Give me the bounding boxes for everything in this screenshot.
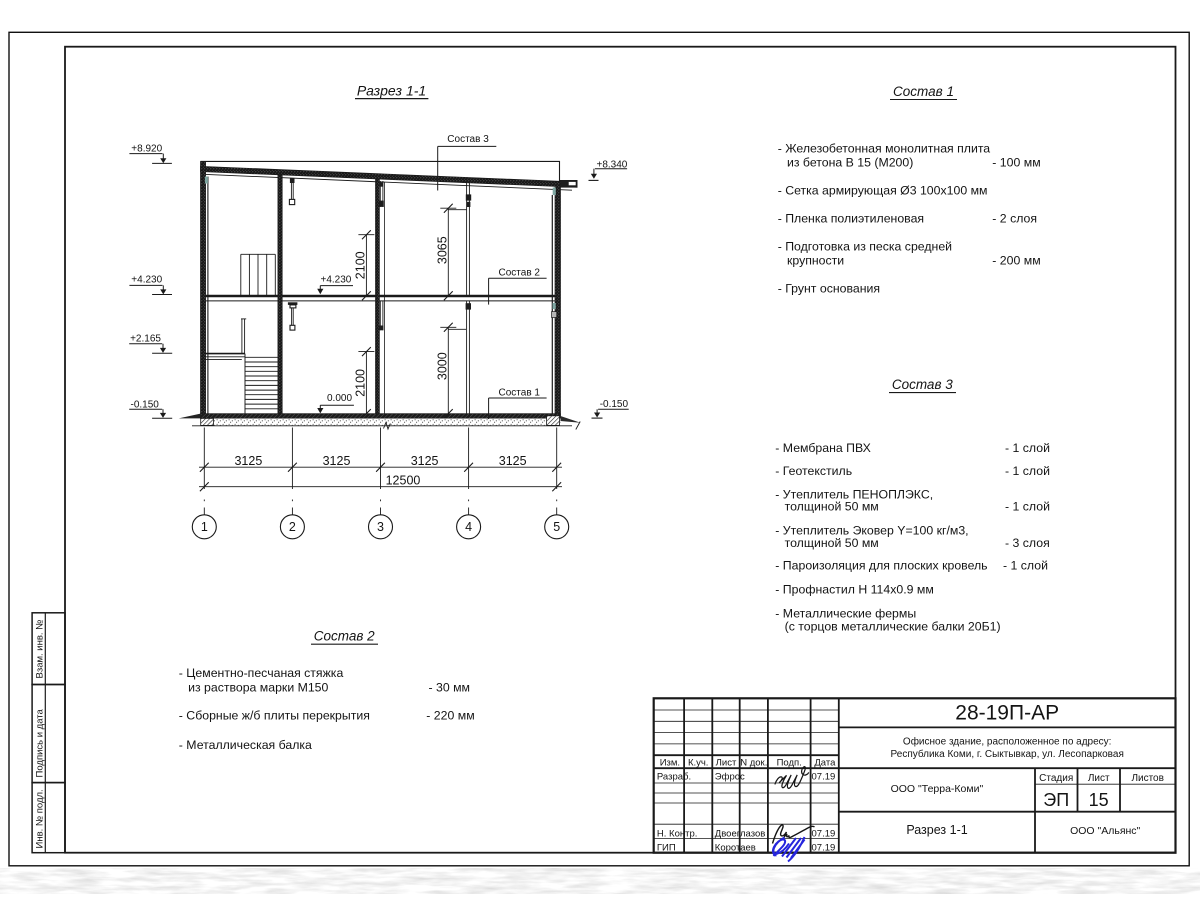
svg-text:28-19П-АР: 28-19П-АР xyxy=(955,702,1059,725)
svg-text:- 1 слой: - 1 слой xyxy=(1005,500,1050,514)
svg-text:3125: 3125 xyxy=(234,454,262,468)
svg-text:5: 5 xyxy=(553,520,560,534)
svg-text:Состав 2: Состав 2 xyxy=(314,628,375,643)
svg-text:1: 1 xyxy=(201,520,208,534)
svg-text:- 1 слой: - 1 слой xyxy=(1003,558,1048,572)
svg-text:- Подготовка из песка средней: - Подготовка из песка средней xyxy=(778,240,952,254)
svg-text:ГИП: ГИП xyxy=(657,842,676,853)
svg-text:из бетона В 15 (М200): из бетона В 15 (М200) xyxy=(787,156,913,170)
svg-text:Эфрос: Эфрос xyxy=(715,772,745,783)
svg-text:Лист: Лист xyxy=(716,758,737,769)
svg-text:- Цементно-песчаная стяжка: - Цементно-песчаная стяжка xyxy=(179,666,344,680)
svg-text:толщиной 50 мм: толщиной 50 мм xyxy=(785,500,879,514)
svg-text:Двоеглазов: Двоеглазов xyxy=(715,829,766,840)
svg-text:- Геотекстиль: - Геотекстиль xyxy=(775,464,852,478)
svg-text:+4.230: +4.230 xyxy=(321,274,352,285)
svg-text:12500: 12500 xyxy=(386,473,421,487)
svg-text:2100: 2100 xyxy=(353,251,367,279)
svg-text:К.уч.: К.уч. xyxy=(688,758,709,769)
svg-text:3: 3 xyxy=(377,520,384,534)
svg-text:- 1 слой: - 1 слой xyxy=(1005,441,1050,455)
svg-text:- Грунт основания: - Грунт основания xyxy=(778,282,880,296)
svg-text:3125: 3125 xyxy=(323,454,351,468)
svg-text:Разрез 1-1: Разрез 1-1 xyxy=(906,823,967,837)
svg-text:- 2 слоя: - 2 слоя xyxy=(992,212,1037,226)
svg-text:Состав 3: Состав 3 xyxy=(892,377,953,392)
svg-text:Состав 3: Состав 3 xyxy=(447,134,489,145)
svg-text:3125: 3125 xyxy=(499,454,527,468)
svg-text:15: 15 xyxy=(1089,790,1109,810)
svg-text:- Профнастил Н 114х0.9 мм: - Профнастил Н 114х0.9 мм xyxy=(775,582,933,596)
svg-text:Разрез 1-1: Разрез 1-1 xyxy=(357,83,426,99)
svg-text:2: 2 xyxy=(289,520,296,534)
svg-text:3125: 3125 xyxy=(411,454,439,468)
svg-text:Состав 2: Состав 2 xyxy=(499,268,541,279)
svg-text:- Мембрана ПВХ: - Мембрана ПВХ xyxy=(775,441,871,455)
svg-text:07.19: 07.19 xyxy=(812,842,836,853)
svg-text:- 100 мм: - 100 мм xyxy=(992,156,1040,170)
svg-text:07.19: 07.19 xyxy=(812,829,836,840)
svg-text:Взам. инв. №: Взам. инв. № xyxy=(34,620,45,679)
svg-text:- Железобетонная монолитная п: - Железобетонная монолитная плита xyxy=(778,142,991,156)
svg-text:- 1 слой: - 1 слой xyxy=(1005,464,1050,478)
svg-text:Разраб.: Разраб. xyxy=(657,772,691,783)
svg-text:(с торцов металлические балки: (с торцов металлические балки 20Б1) xyxy=(785,620,1001,634)
svg-text:из раствора марки М150: из раствора марки М150 xyxy=(188,681,328,695)
svg-text:Подпись и дата: Подпись и дата xyxy=(34,708,45,777)
svg-text:- Пленка полиэтиленовая: - Пленка полиэтиленовая xyxy=(778,212,924,226)
svg-text:Коротаев: Коротаев xyxy=(715,842,756,853)
svg-text:Листов: Листов xyxy=(1131,773,1164,784)
svg-text:4: 4 xyxy=(465,520,472,534)
svg-text:толщиной 50 мм: толщиной 50 мм xyxy=(785,536,879,550)
svg-text:крупности: крупности xyxy=(787,254,844,268)
svg-text:3065: 3065 xyxy=(436,236,450,264)
svg-text:Республика Коми, г. Сыктывкар,: Республика Коми, г. Сыктывкар, ул. Лесоп… xyxy=(891,748,1124,760)
svg-text:ООО "Терра-Коми": ООО "Терра-Коми" xyxy=(891,783,984,795)
svg-text:Инв. № подл.: Инв. № подл. xyxy=(34,789,45,848)
svg-text:Офисное здание, расположенное: Офисное здание, расположенное по адресу: xyxy=(903,736,1112,748)
svg-text:Н. Контр.: Н. Контр. xyxy=(657,829,697,840)
svg-text:3000: 3000 xyxy=(436,352,450,380)
svg-text:Изм.: Изм. xyxy=(660,758,680,769)
svg-text:- Пароизоляция для плоских кро: - Пароизоляция для плоских кровель xyxy=(775,558,987,572)
svg-text:-0.150: -0.150 xyxy=(131,399,160,410)
svg-text:- Металлические фермы: - Металлические фермы xyxy=(775,607,916,621)
svg-text:07.19: 07.19 xyxy=(812,772,836,783)
svg-text:0.000: 0.000 xyxy=(327,393,352,404)
svg-text:- 200 мм: - 200 мм xyxy=(992,254,1040,268)
svg-text:- Металлическая балка: - Металлическая балка xyxy=(179,738,312,752)
svg-text:Стадия: Стадия xyxy=(1039,773,1073,784)
svg-text:Дата: Дата xyxy=(814,758,836,769)
svg-text:Лист: Лист xyxy=(1088,773,1110,784)
svg-text:- Сетка армирующая Ø3 100х100: - Сетка армирующая Ø3 100х100 мм xyxy=(778,184,988,198)
svg-text:+4.230: +4.230 xyxy=(131,275,162,286)
svg-text:- 30 мм: - 30 мм xyxy=(429,681,471,695)
svg-text:- Сборные ж/б плиты перекрытия: - Сборные ж/б плиты перекрытия xyxy=(179,709,370,723)
svg-text:2100: 2100 xyxy=(353,369,367,397)
svg-text:Подп.: Подп. xyxy=(777,758,802,769)
svg-text:ЭП: ЭП xyxy=(1043,790,1069,810)
svg-text:Состав 1: Состав 1 xyxy=(499,388,541,399)
svg-text:+2.165: +2.165 xyxy=(130,334,161,345)
svg-text:ООО "Альянс": ООО "Альянс" xyxy=(1070,825,1140,837)
svg-text:- 3 слоя: - 3 слоя xyxy=(1005,536,1050,550)
svg-text:+8.920: +8.920 xyxy=(131,144,162,155)
svg-text:N док.: N док. xyxy=(740,758,767,769)
svg-text:Состав 1: Состав 1 xyxy=(893,84,954,99)
svg-text:-0.150: -0.150 xyxy=(600,399,629,410)
svg-text:- 220 мм: - 220 мм xyxy=(426,709,474,723)
